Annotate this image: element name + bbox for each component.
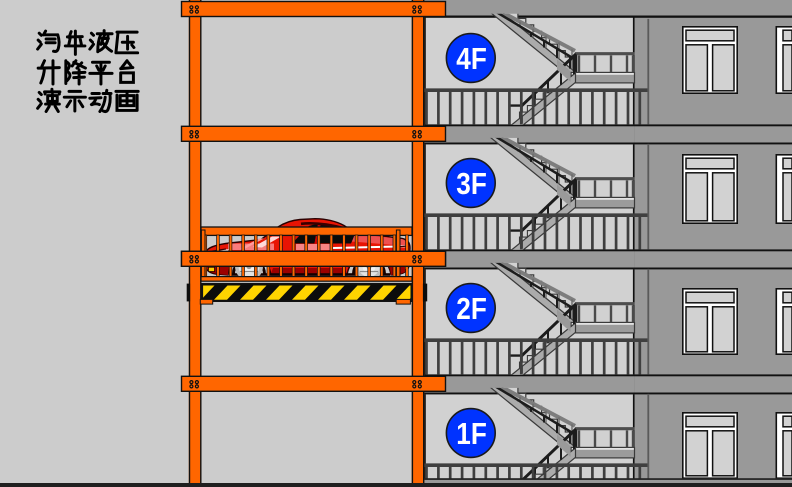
svg-text:3F: 3F — [456, 166, 487, 201]
svg-text:4F: 4F — [456, 41, 487, 76]
svg-text:2F: 2F — [456, 291, 487, 326]
svg-text:1F: 1F — [456, 416, 487, 451]
